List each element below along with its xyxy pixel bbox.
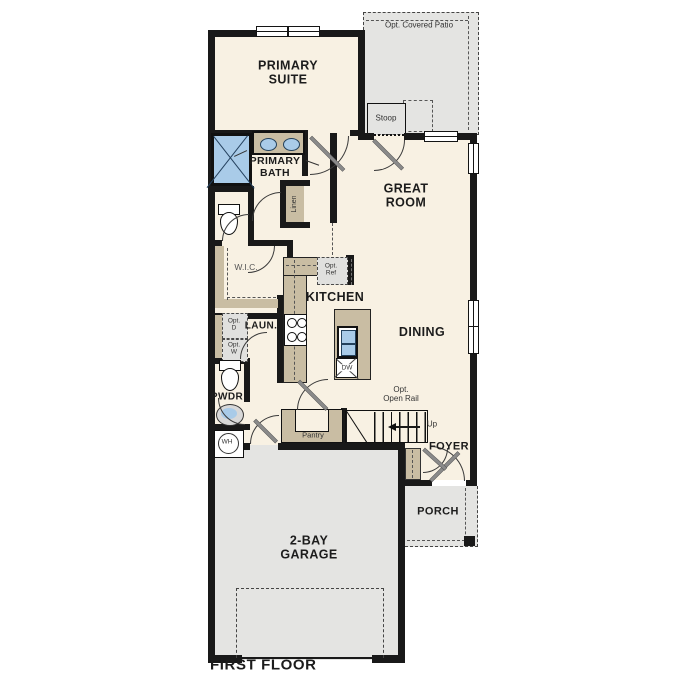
floor-plan-canvas: PRIMARY SUITE PRIMARY BATH GREAT ROOM KI… (0, 0, 687, 687)
label-porch: PORCH (417, 506, 459, 519)
wall-right-c (470, 352, 477, 486)
plan-title: FIRST FLOOR (210, 656, 317, 673)
label-dining: DINING (399, 325, 445, 339)
fridge-dash (351, 259, 352, 285)
wall-greatroom-top-a (358, 133, 374, 140)
label-primary-bath: PRIMARY BATH (250, 155, 301, 179)
label-opt-open-rail: Opt. Open Rail (383, 385, 419, 403)
label-kitchen: KITCHEN (306, 290, 364, 304)
wall-garage-top (278, 443, 405, 450)
range-stove (284, 314, 307, 346)
garage-door-dashed-outline (236, 588, 384, 658)
wall-linen-bottom (280, 222, 310, 228)
label-laundry: LAUN. (245, 320, 278, 332)
wall-suite-right (358, 30, 365, 140)
wic-rod-dash-h (227, 297, 276, 298)
window-greatroom-top (424, 131, 458, 142)
stairs-up-arrow-line (396, 426, 420, 428)
vanity-counter (252, 131, 305, 155)
island-sink (337, 326, 358, 358)
label-great-room: GREAT ROOM (384, 182, 429, 211)
label-stoop: Stoop (376, 113, 397, 122)
wall-powder-right (244, 358, 250, 402)
wall-greatroom-top-b (404, 133, 426, 140)
label-opt-fridge: Opt. Ref (325, 263, 337, 278)
window-dining-lower (468, 326, 479, 354)
label-linen: Linen (291, 195, 299, 212)
case-opening-dash (332, 223, 333, 255)
pantry-recess (295, 410, 329, 432)
label-opt-dryer: Opt. D (228, 318, 240, 333)
porch-post (464, 536, 475, 546)
label-opt-washer: Opt. W (228, 342, 240, 357)
label-dishwasher: DW (341, 364, 354, 371)
label-wic: W.I.C. (234, 263, 257, 273)
window-dining-upper (468, 300, 479, 328)
wall-left-exterior (208, 30, 215, 663)
stairs-up-arrow-head (388, 423, 396, 431)
wall-right-a (470, 133, 477, 143)
label-covered-patio: Opt. Covered Patio (385, 20, 453, 29)
wall-right-b (470, 172, 477, 300)
wall-suite-bath-stub (350, 130, 358, 136)
wall-foyer-bottom-b (466, 480, 477, 486)
vanity-sink-left (260, 138, 277, 151)
label-foyer: FOYER (429, 441, 469, 454)
wic-shelf-bottom (215, 299, 278, 308)
label-water-heater: WH (222, 438, 233, 445)
window-primary-suite (256, 26, 320, 37)
patio-dashed-inset (403, 100, 433, 132)
stoop-threshold-dots (374, 134, 404, 136)
shower-fixture (211, 133, 252, 186)
kitchen-counter-dash-h (286, 265, 316, 266)
wall-garage-right (398, 445, 405, 663)
vanity-sink-right (283, 138, 300, 151)
foyer-closet-dash (412, 450, 413, 478)
label-primary-suite: PRIMARY SUITE (258, 59, 318, 88)
patio-inner-dash-right (468, 16, 469, 130)
kitchen-counter-top (283, 257, 318, 276)
label-powder: PWDR (211, 391, 243, 403)
wic-rod-dash-v (227, 248, 228, 300)
laundry-shelf (215, 315, 222, 358)
label-stairs-up: Up (427, 419, 437, 428)
label-pantry: Pantry (302, 432, 324, 441)
foyer-closet (405, 448, 421, 480)
window-greatroom-right (468, 143, 479, 174)
label-garage: 2-BAY GARAGE (280, 534, 337, 563)
